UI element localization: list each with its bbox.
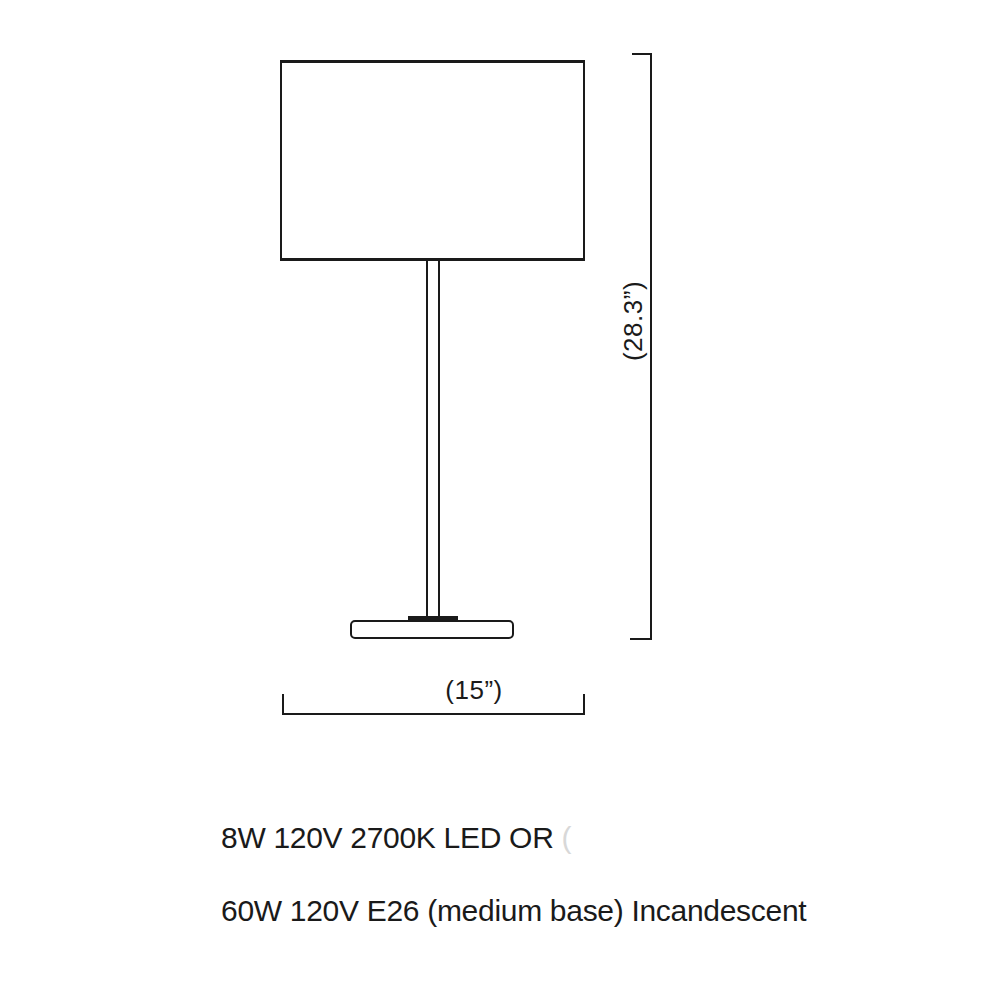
bulb-spec-led: 8W 120V 2700K LED OR ( — [221, 820, 571, 856]
bulb-spec-led-text: 8W 120V 2700K LED OR — [221, 821, 554, 854]
height-dimension-tick-bottom — [630, 638, 652, 640]
width-dimension-tick-left — [282, 694, 284, 715]
width-dimension-line — [282, 713, 585, 715]
lamp-dimension-drawing: (28.3”) (15”) 8W 120V 2700K LED OR ( 60W… — [0, 0, 984, 984]
lamp-shade-outline — [280, 60, 585, 261]
width-dimension-tick-right — [583, 694, 585, 715]
height-dimension-label: (28.3”) — [618, 281, 649, 361]
bulb-spec-incandescent: 60W 120V E26 (medium base) Incandescent — [221, 893, 806, 929]
lamp-base-outline — [350, 620, 514, 639]
lamp-stem-outline — [426, 261, 440, 620]
bulb-spec-led-faint-paren: ( — [562, 821, 572, 854]
height-dimension-tick-top — [632, 53, 652, 55]
width-dimension-label: (15”) — [445, 675, 502, 706]
height-dimension-line — [650, 53, 652, 640]
